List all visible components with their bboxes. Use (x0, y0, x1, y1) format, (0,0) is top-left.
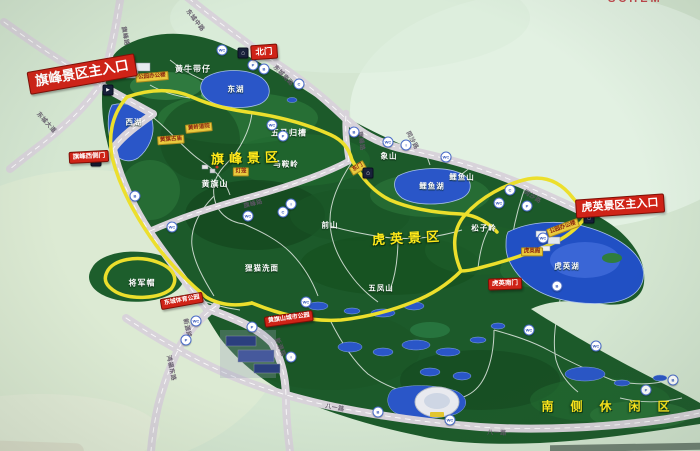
feature-label-5: 黄旗山 (202, 179, 229, 190)
toilet-icon: WC (243, 211, 254, 222)
feature-label-3: 五马归槽 (271, 128, 307, 139)
road-label-10: 鸿福东路 (165, 354, 179, 381)
toilet-icon: WC (217, 45, 228, 56)
huangqishan-city-park-label: 黄旗山城市公园 (264, 310, 314, 328)
photo-edge-bottom-right (550, 443, 700, 451)
road-label-12: 八一路 (487, 427, 507, 437)
parking-icon: P (522, 201, 533, 212)
arrow-icon: ► (103, 85, 114, 96)
poi-tag-1: 黄岭道院 (185, 122, 213, 134)
bus-icon: B (552, 281, 563, 292)
toilet-icon: WC (441, 152, 452, 163)
road-label-1: 东城大道 (35, 109, 59, 134)
camera-icon: C (505, 185, 516, 196)
feature-label-10: 狸猫洗面 (245, 263, 279, 274)
feature-label-1: 东湖 (228, 84, 245, 95)
toilet-icon: WC (191, 316, 202, 327)
bus-icon: B (373, 407, 384, 418)
toilet-icon: WC (538, 233, 549, 244)
poi-tag-3: 灯笼 (233, 167, 249, 176)
poi-tag-6: 虎英阁 (521, 247, 543, 256)
north-gate-label: 北门 (250, 44, 278, 61)
feature-label-7: 鲤鱼湖 (419, 181, 445, 192)
feature-label-6: 象山 (381, 151, 398, 162)
parking-icon: P (247, 322, 258, 333)
feature-label-12: 松子岭 (471, 223, 497, 234)
info-icon: i (401, 140, 412, 151)
qifeng-west-gate-label: 旗峰西侧门 (69, 150, 110, 164)
toilet-icon: WC (267, 120, 278, 131)
feature-label-14: 将军帽 (129, 278, 156, 289)
parking-icon: P (641, 385, 652, 396)
toilet-icon: WC (494, 198, 505, 209)
feature-label-8: 鲤鱼山 (449, 172, 475, 183)
gate-icon: ⌂ (238, 48, 249, 59)
poi-tag-5: 公园办公楼 (546, 218, 580, 238)
toilet-icon: WC (167, 222, 178, 233)
dongcheng-sports-park-label: 东城体育公园 (160, 292, 205, 311)
south-leisure-area-title: 南侧休闲区 (541, 398, 686, 415)
parking-icon: P (248, 60, 259, 71)
huying-area-title: 虎英景区 (372, 226, 445, 249)
qifeng-main-entrance-label: 旗峰景区主入口 (27, 53, 138, 94)
feature-label-9: 前山 (322, 220, 339, 231)
toilet-icon: WC (383, 137, 394, 148)
camera-icon: C (294, 79, 305, 90)
info-icon: i (286, 352, 297, 363)
parking-icon: P (181, 335, 192, 346)
park-map-sign-photo: 旗峰景区主入口北门旗峰西侧门虎英景区主入口虎英南门东城体育公园黄旗山城市公园旗峰… (0, 0, 700, 451)
bus-icon: B (259, 64, 270, 75)
road-label-0: 旗峰路 (120, 26, 132, 47)
road-label-7: 旗峰路 (242, 196, 263, 209)
feature-label-2: 西湖 (126, 117, 143, 128)
poi-tag-0: 公园办公楼 (135, 71, 168, 83)
poi-tag-2: 黄旗古庙 (157, 134, 185, 145)
feature-label-0: 黄牛带仔 (175, 64, 211, 75)
feature-label-13: 虎英湖 (554, 261, 580, 272)
qifeng-area-title: 旗峰景区 (211, 146, 284, 168)
bus-icon: B (668, 375, 679, 386)
bus-icon: B (130, 191, 141, 202)
road-label-2: 东城中路 (184, 7, 207, 33)
parking-icon: P (278, 131, 289, 142)
toilet-icon: WC (301, 297, 312, 308)
toilet-icon: WC (445, 415, 456, 426)
huying-south-gate-label: 虎英南门 (488, 277, 522, 290)
toilet-icon: WC (524, 325, 535, 336)
info-icon: i (286, 199, 297, 210)
road-label-11: 八一路 (325, 401, 346, 413)
toilet-icon: WC (591, 341, 602, 352)
feature-label-11: 五凤山 (368, 283, 394, 294)
bus-icon: B (349, 127, 360, 138)
map-labels-layer: 旗峰景区主入口北门旗峰西侧门虎英景区主入口虎英南门东城体育公园黄旗山城市公园旗峰… (0, 0, 700, 451)
huying-main-entrance-label: 虎英景区主入口 (575, 193, 665, 218)
cropped-title-text: SCHEM (608, 0, 663, 5)
gate-icon: ⌂ (363, 168, 374, 179)
